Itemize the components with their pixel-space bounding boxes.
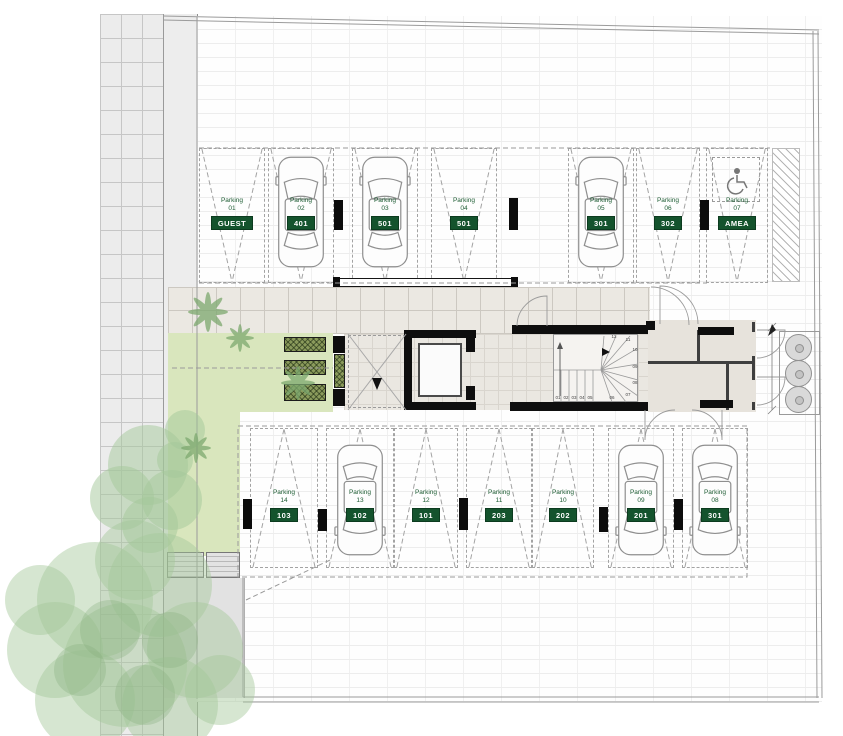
utility-box [206, 552, 240, 578]
planter-bed [284, 337, 326, 352]
stall-plate: 101 [412, 508, 440, 522]
parking-stall: Parking 01 GUEST [199, 148, 265, 283]
elevator-cab [418, 343, 462, 397]
stall-number: 06 [637, 205, 699, 213]
stall-number: 13 [327, 497, 393, 505]
stall-plate: 103 [270, 508, 298, 522]
stall-label: Parking 14 103 [251, 489, 317, 523]
stall-plate: 501 [450, 216, 478, 230]
wall [510, 402, 648, 411]
ramp-area [348, 335, 406, 408]
wall [512, 325, 648, 334]
stall-plate: 203 [485, 508, 513, 522]
stall-parking-word: Parking [251, 489, 317, 497]
stall-label: Parking 10 202 [533, 489, 593, 523]
stall-parking-word: Parking [637, 197, 699, 205]
wall [697, 330, 700, 364]
stall-parking-word: Parking [683, 489, 747, 497]
parking-stall: Parking 11 203 [466, 428, 532, 568]
parking-stall: Parking 12 101 [394, 428, 458, 568]
stall-label: Parking 04 501 [432, 197, 496, 231]
utility-box [167, 552, 204, 578]
hatched-zone [772, 148, 800, 282]
parking-stall: Parking 07 AMEA [706, 148, 768, 283]
stall-label: Parking 09 201 [609, 489, 673, 523]
stall-label: Parking 08 301 [683, 489, 747, 523]
bin-icon [785, 334, 812, 361]
parking-stall: Parking 08 301 [682, 428, 748, 568]
parking-stall: Parking 10 202 [532, 428, 594, 568]
elevator-wall [404, 330, 476, 338]
planter-bed [284, 360, 326, 375]
wall [333, 336, 345, 353]
stall-parking-word: Parking [569, 197, 633, 205]
stall-number: 02 [269, 205, 333, 213]
stall-number: 08 [683, 497, 747, 505]
beam-cap [511, 277, 518, 287]
stall-number: 10 [533, 497, 593, 505]
planter-bed [334, 354, 345, 388]
stall-plate: 302 [654, 216, 682, 230]
stall-parking-word: Parking [609, 489, 673, 497]
parking-stall: Parking 09 201 [608, 428, 674, 568]
stall-parking-word: Parking [395, 489, 457, 497]
column [318, 509, 327, 531]
stall-plate: 301 [587, 216, 615, 230]
beam-over-drive [333, 278, 518, 287]
stall-plate: 202 [549, 508, 577, 522]
beam-cap [333, 277, 340, 287]
wall [646, 321, 655, 330]
parking-stall: Parking 06 302 [636, 148, 700, 283]
site-plan: Parking 01 GUEST Parking 02 401 [0, 0, 843, 736]
bin-icon [785, 386, 812, 413]
stall-label: Parking 02 401 [269, 197, 333, 231]
parking-stall: Parking 14 103 [250, 428, 318, 568]
driveway-ramp [164, 578, 245, 698]
stall-plate: 301 [701, 508, 729, 522]
stall-number: 09 [609, 497, 673, 505]
wall [648, 361, 754, 364]
bin-icon [785, 360, 812, 387]
stall-parking-word: Parking [533, 489, 593, 497]
elevator-wall [466, 338, 475, 352]
planter-bed [284, 384, 326, 401]
wall [752, 356, 755, 380]
waste-bins-area [779, 331, 820, 415]
stall-number: 03 [353, 205, 417, 213]
parking-stall: Parking 03 501 [352, 148, 418, 283]
stall-number: 01 [200, 205, 264, 213]
stall-label: Parking 01 GUEST [200, 197, 264, 231]
stall-number: 04 [432, 205, 496, 213]
column [459, 498, 468, 530]
stall-plate: 501 [371, 216, 399, 230]
stall-number: 05 [569, 205, 633, 213]
stall-parking-word: Parking [269, 197, 333, 205]
column [243, 499, 252, 529]
column [509, 198, 518, 230]
wall [752, 322, 755, 332]
stall-label: Parking 11 203 [467, 489, 531, 523]
parking-stall: Parking 05 301 [568, 148, 634, 283]
stall-parking-word: Parking [707, 197, 767, 205]
stall-parking-word: Parking [467, 489, 531, 497]
stall-parking-word: Parking [432, 197, 496, 205]
elevator-wall [466, 386, 475, 400]
wall [333, 389, 345, 406]
parking-stall: Parking 04 501 [431, 148, 497, 283]
stall-label: Parking 06 302 [637, 197, 699, 231]
stall-number: 12 [395, 497, 457, 505]
stall-label: Parking 05 301 [569, 197, 633, 231]
stall-label: Parking 12 101 [395, 489, 457, 523]
stall-number: 07 [707, 205, 767, 213]
stall-label: Parking 07 AMEA [707, 197, 767, 231]
wall [700, 400, 733, 408]
stall-plate: 201 [627, 508, 655, 522]
stall-plate: AMEA [718, 216, 756, 230]
parking-stall: Parking 02 401 [268, 148, 334, 283]
stall-number: 14 [251, 497, 317, 505]
stall-parking-word: Parking [353, 197, 417, 205]
column [334, 200, 343, 230]
stall-label: Parking 03 501 [353, 197, 417, 231]
stall-plate: 401 [287, 216, 315, 230]
elevator-wall [404, 330, 412, 410]
elevator-wall [404, 402, 476, 410]
stall-plate: GUEST [211, 216, 253, 230]
column [700, 200, 709, 230]
column [674, 499, 683, 530]
stall-parking-word: Parking [327, 489, 393, 497]
stall-parking-word: Parking [200, 197, 264, 205]
staircase [553, 334, 638, 402]
stall-label: Parking 13 102 [327, 489, 393, 523]
column [599, 507, 608, 532]
stall-number: 11 [467, 497, 531, 505]
parking-stall: Parking 13 102 [326, 428, 394, 568]
wall [698, 327, 734, 335]
stall-plate: 102 [346, 508, 374, 522]
wall [752, 402, 755, 410]
